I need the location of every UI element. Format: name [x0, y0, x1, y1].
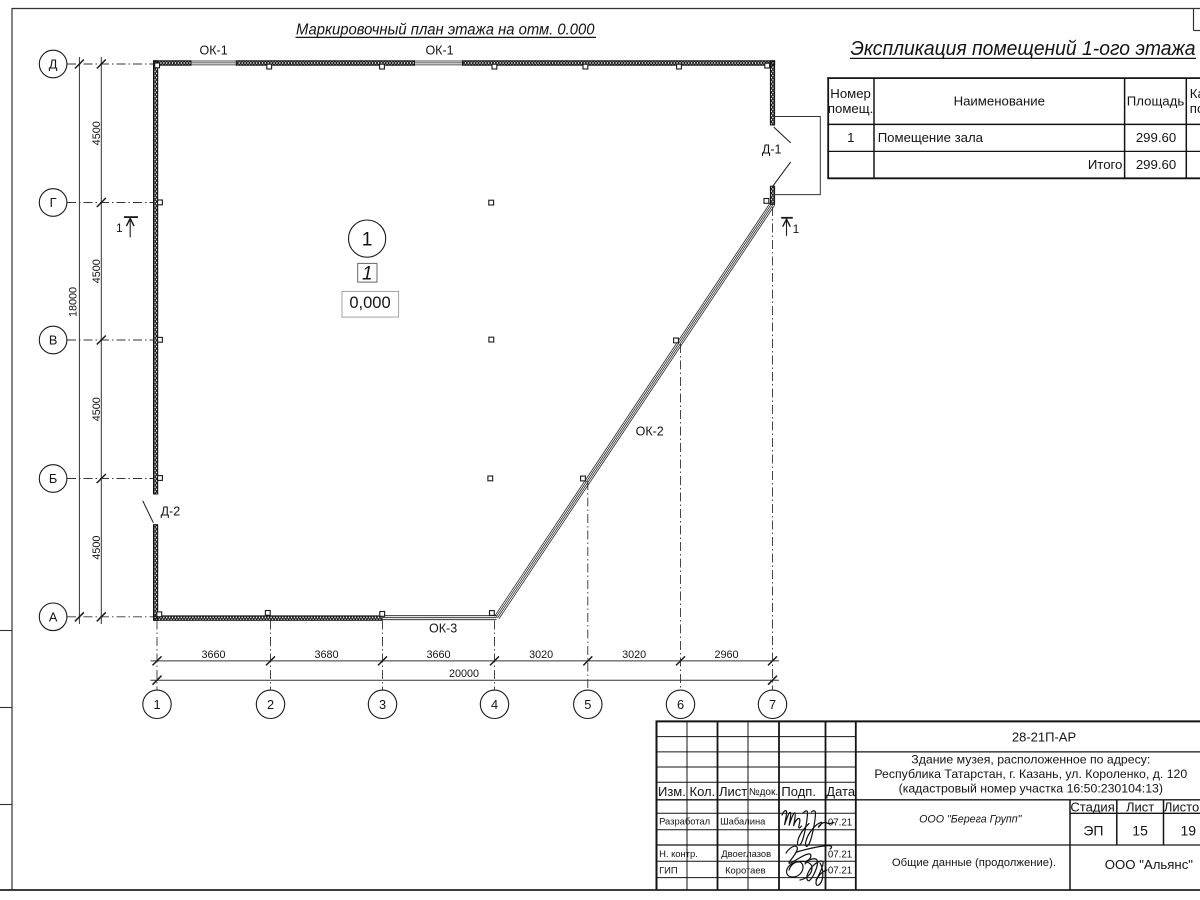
svg-text:Шабалина: Шабалина	[720, 815, 766, 826]
svg-text:Листов: Листов	[1164, 799, 1200, 814]
svg-text:3: 3	[379, 697, 386, 712]
svg-text:Площадь: Площадь	[1127, 94, 1185, 109]
svg-text:19: 19	[1181, 822, 1197, 838]
svg-text:Б: Б	[49, 471, 57, 486]
svg-text:3680: 3680	[314, 649, 338, 661]
svg-text:4: 4	[491, 697, 498, 712]
svg-text:№док.: №док.	[749, 787, 778, 798]
svg-text:Д: Д	[49, 57, 58, 72]
svg-text:ЭП: ЭП	[1083, 822, 1103, 838]
svg-text:А: А	[49, 609, 58, 624]
svg-text:Д-2: Д-2	[161, 504, 181, 518]
svg-text:Категория: Категория	[1190, 86, 1200, 101]
svg-text:Подп.: Подп.	[781, 784, 816, 799]
svg-text:07.21: 07.21	[828, 850, 852, 861]
svg-text:ОК-1: ОК-1	[200, 43, 228, 57]
svg-text:0,000: 0,000	[349, 294, 390, 312]
svg-text:Лист: Лист	[719, 784, 747, 799]
svg-text:В: В	[49, 333, 58, 348]
svg-text:Коротаев: Коротаев	[725, 865, 766, 876]
svg-text:Разработал: Разработал	[659, 815, 710, 826]
svg-text:2960: 2960	[714, 649, 738, 661]
svg-text:299.60: 299.60	[1136, 157, 1176, 172]
svg-text:3020: 3020	[622, 649, 646, 661]
svg-text:3020: 3020	[529, 649, 553, 661]
svg-text:Лист: Лист	[1126, 799, 1154, 814]
svg-text:Здание музея, расположенное по: Здание музея, расположенное по адресу:	[911, 753, 1150, 767]
svg-text:помещ.: помещ.	[828, 101, 873, 116]
svg-text:6: 6	[677, 697, 684, 712]
svg-text:4500: 4500	[91, 121, 103, 145]
svg-text:28-21П-АР: 28-21П-АР	[1012, 730, 1076, 745]
svg-text:4500: 4500	[91, 397, 103, 421]
svg-text:Двоеглазов: Двоеглазов	[721, 848, 771, 859]
svg-text:3660: 3660	[426, 649, 450, 661]
svg-text:1: 1	[153, 697, 160, 712]
svg-text:07.21: 07.21	[828, 865, 852, 876]
svg-text:Г: Г	[50, 195, 57, 210]
svg-text:1: 1	[362, 229, 373, 250]
svg-text:Д-1: Д-1	[762, 143, 782, 157]
svg-text:4500: 4500	[91, 536, 103, 560]
svg-text:Маркировочный план этажа на от: Маркировочный план этажа на отм. 0.000	[296, 22, 595, 39]
svg-text:ОК-3: ОК-3	[429, 622, 457, 636]
svg-text:1: 1	[847, 130, 854, 145]
svg-text:1: 1	[116, 221, 123, 235]
svg-text:Общие данные (продолжение).: Общие данные (продолжение).	[892, 857, 1056, 869]
svg-text:Дата: Дата	[826, 784, 856, 799]
svg-text:Н. контр.: Н. контр.	[659, 848, 698, 859]
svg-text:Кол.: Кол.	[690, 784, 716, 799]
svg-text:Итого: Итого	[1088, 157, 1123, 172]
svg-text:1: 1	[362, 264, 373, 285]
svg-text:Стадия: Стадия	[1070, 799, 1114, 814]
svg-text:(кадастровый номер участка 16:: (кадастровый номер участка 16:50:230104:…	[899, 782, 1163, 796]
svg-text:3660: 3660	[201, 649, 225, 661]
svg-text:ГИП: ГИП	[659, 865, 678, 876]
svg-text:ОК-2: ОК-2	[636, 425, 664, 439]
svg-text:15: 15	[1132, 822, 1148, 838]
svg-text:ООО "Берега Групп": ООО "Берега Групп"	[919, 814, 1023, 826]
svg-text:2: 2	[267, 697, 274, 712]
svg-text:Помещение зала: Помещение зала	[878, 130, 984, 145]
svg-text:пожарной: пожарной	[1190, 101, 1200, 116]
svg-text:20000: 20000	[449, 668, 479, 680]
svg-text:4500: 4500	[91, 259, 103, 283]
svg-text:1: 1	[793, 222, 800, 236]
svg-text:ООО "Альянс": ООО "Альянс"	[1105, 857, 1193, 872]
svg-text:7: 7	[769, 697, 776, 712]
svg-text:Номер: Номер	[830, 86, 871, 101]
svg-text:Наименование: Наименование	[954, 94, 1045, 109]
svg-text:ОК-1: ОК-1	[425, 43, 453, 57]
svg-text:299.60: 299.60	[1136, 130, 1176, 145]
svg-text:Изм.: Изм.	[658, 784, 686, 799]
svg-text:18000: 18000	[67, 287, 79, 317]
svg-text:5: 5	[584, 697, 591, 712]
svg-text:Экспликация помещений 1-ого эт: Экспликация помещений 1-ого этажа	[851, 38, 1196, 60]
svg-text:Республика Татарстан, г. Казан: Республика Татарстан, г. Казань, ул. Кор…	[874, 767, 1187, 781]
